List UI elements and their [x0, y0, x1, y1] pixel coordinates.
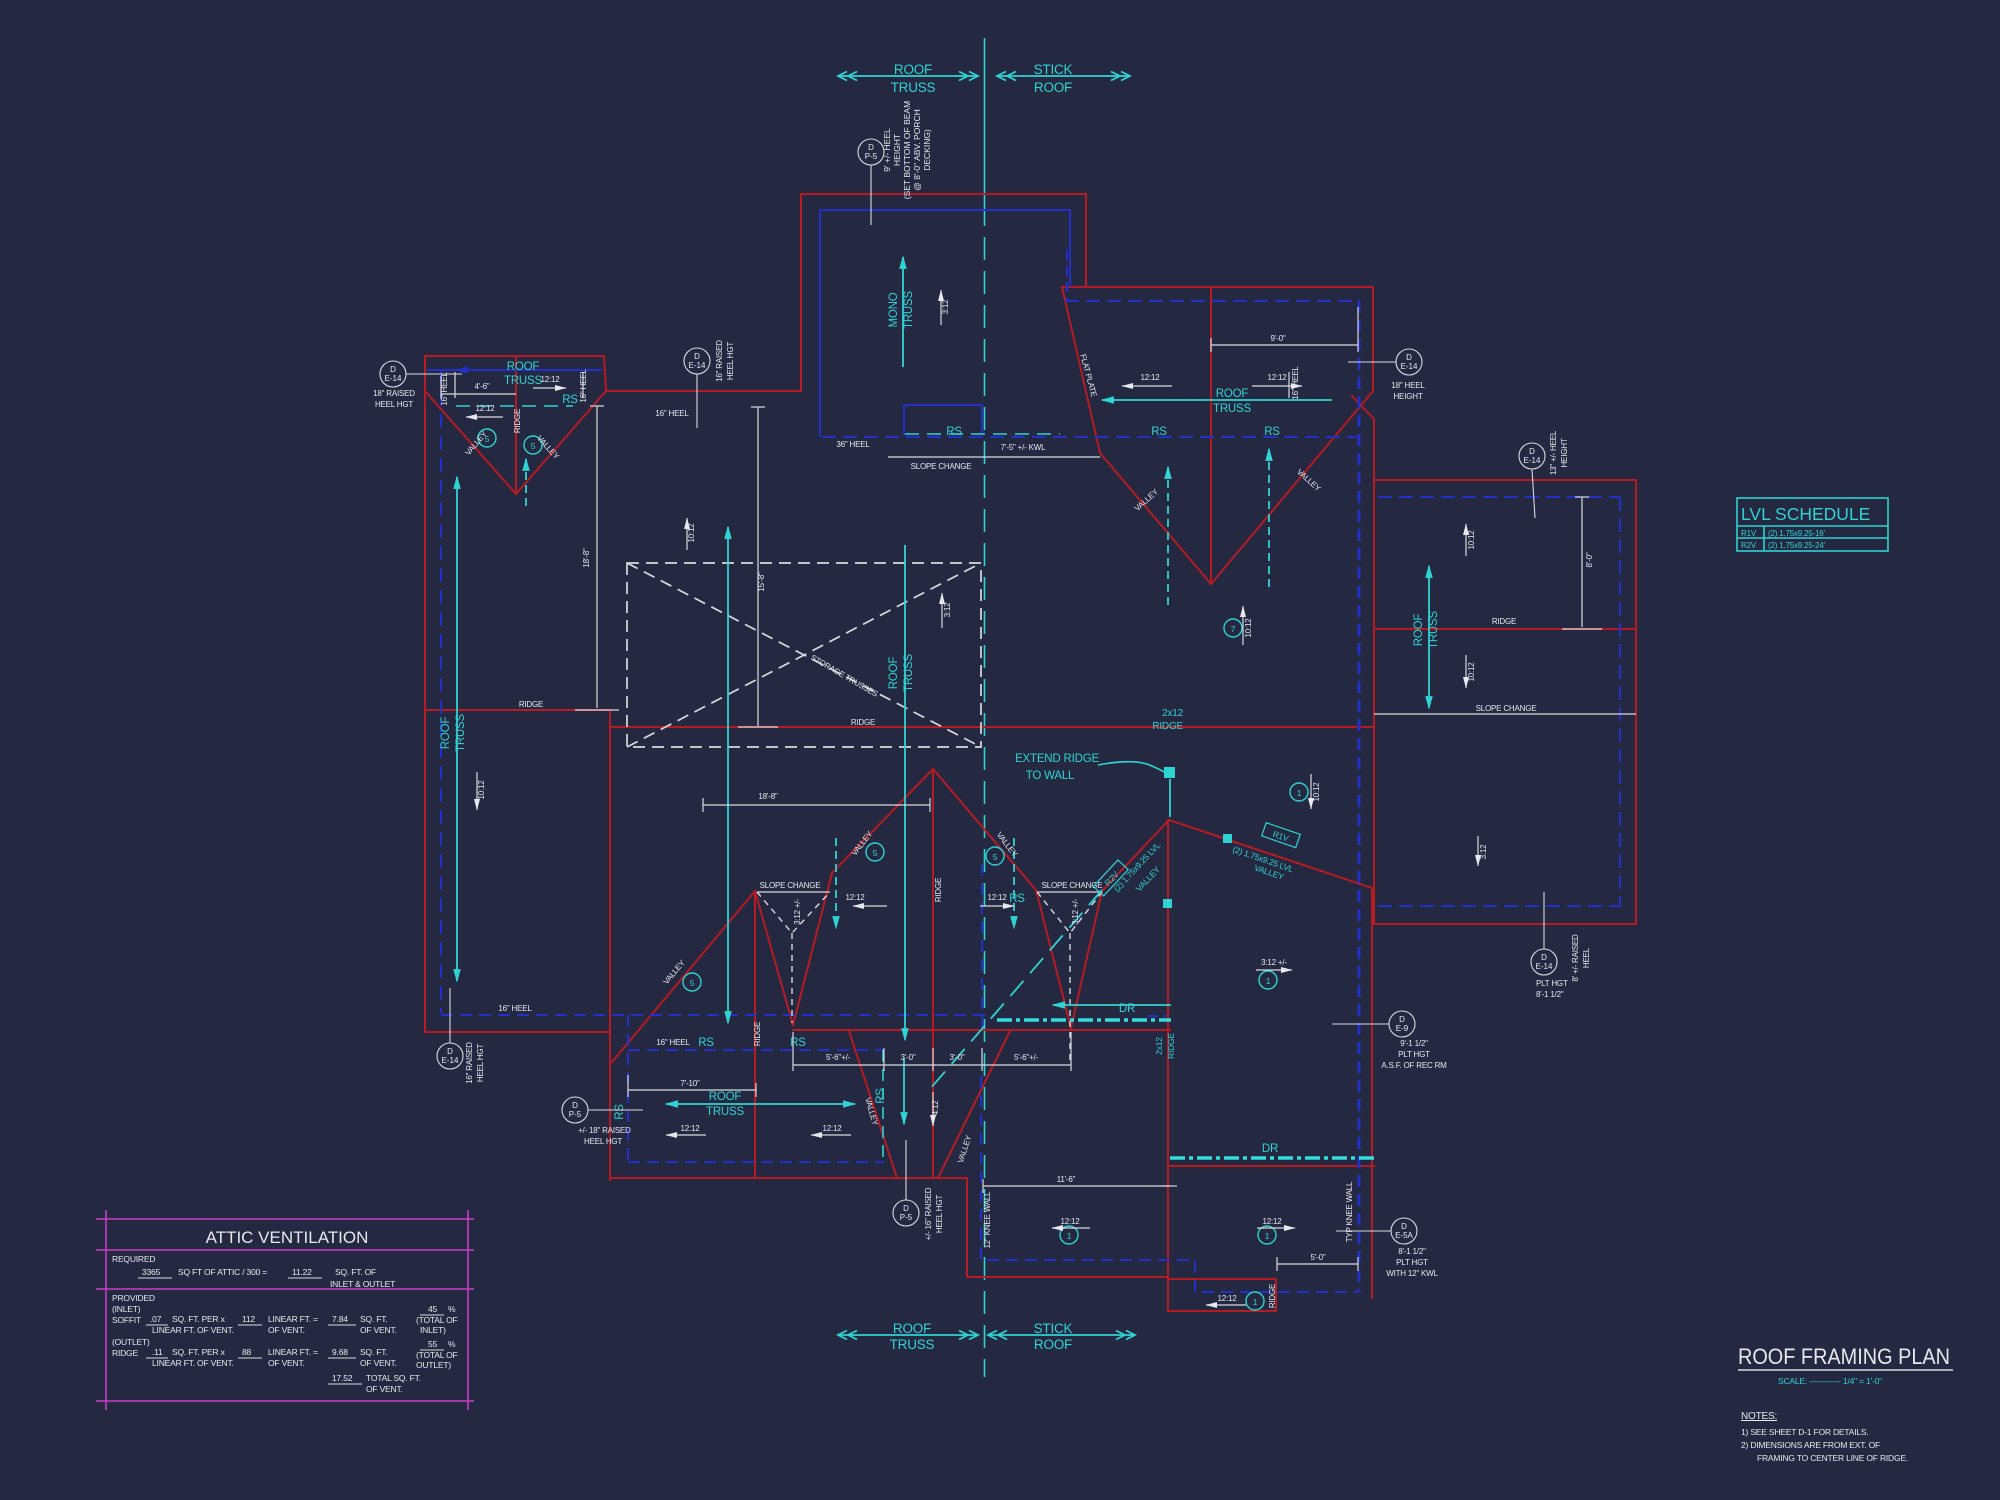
svg-text:SCALE: ------------ 1/4" = 1'-: SCALE: ------------ 1/4" = 1'-0"	[1778, 1376, 1882, 1386]
svg-text:NOTES:: NOTES:	[1741, 1411, 1777, 1422]
svg-text:D: D	[1406, 353, 1412, 362]
svg-text:5'-6"+/-: 5'-6"+/-	[826, 1053, 850, 1062]
svg-text:16" HEEL: 16" HEEL	[579, 369, 588, 403]
svg-text:(TOTAL OF: (TOTAL OF	[416, 1350, 458, 1360]
svg-text:18'-8": 18'-8"	[582, 548, 591, 568]
svg-text:RS: RS	[1151, 426, 1167, 438]
svg-text:EXTEND RIDGE: EXTEND RIDGE	[1015, 753, 1099, 765]
svg-text:OF VENT.: OF VENT.	[268, 1358, 305, 1368]
svg-text:OUTLET): OUTLET)	[416, 1360, 451, 1370]
svg-text:12:12: 12:12	[475, 404, 495, 413]
svg-text:55: 55	[428, 1339, 438, 1349]
svg-text:RS: RS	[562, 394, 578, 406]
svg-text:ROOF: ROOF	[893, 1321, 931, 1336]
svg-text:5: 5	[873, 848, 878, 858]
svg-text:16" HEEL: 16" HEEL	[498, 1004, 532, 1013]
svg-text:E-14: E-14	[1524, 456, 1541, 465]
svg-text:SQ. FT. OF: SQ. FT. OF	[335, 1267, 376, 1277]
svg-text:ROOF: ROOF	[1413, 614, 1425, 647]
svg-text:E-14: E-14	[385, 374, 402, 383]
svg-text:10:12: 10:12	[477, 780, 486, 800]
svg-text:8'-1 1/2": 8'-1 1/2"	[1398, 1247, 1426, 1256]
svg-text:12:12: 12:12	[987, 893, 1007, 902]
svg-text:1) SEE SHEET D-1 FOR DETAILS.: 1) SEE SHEET D-1 FOR DETAILS.	[1741, 1427, 1869, 1437]
svg-text:.07: .07	[150, 1314, 162, 1324]
svg-text:1: 1	[1297, 788, 1302, 798]
svg-text:RS: RS	[1264, 426, 1280, 438]
svg-text:HEIGHT: HEIGHT	[892, 134, 902, 166]
svg-text:7.84: 7.84	[332, 1314, 348, 1324]
svg-text:TRUSS: TRUSS	[891, 80, 936, 95]
svg-text:D: D	[903, 1204, 909, 1213]
svg-text:R1V: R1V	[1741, 529, 1757, 538]
svg-text:12:12: 12:12	[822, 1124, 842, 1133]
svg-text:2) DIMENSIONS ARE FROM EXT. O: 2) DIMENSIONS ARE FROM EXT. OF	[1741, 1440, 1880, 1450]
svg-text:P-5: P-5	[865, 152, 878, 161]
svg-text:HEEL: HEEL	[1582, 947, 1591, 968]
svg-text:(2) 1.75x9.25-16': (2) 1.75x9.25-16'	[1768, 529, 1826, 538]
svg-text:12:12: 12:12	[1060, 1217, 1080, 1226]
svg-text:TOTAL SQ. FT.: TOTAL SQ. FT.	[366, 1373, 421, 1383]
svg-text:D: D	[1541, 953, 1547, 962]
svg-text:1: 1	[1266, 976, 1271, 986]
svg-text:HEIGHT: HEIGHT	[1393, 392, 1422, 401]
svg-text:INLET): INLET)	[420, 1325, 446, 1335]
svg-text:5'-6"+/-: 5'-6"+/-	[1014, 1053, 1038, 1062]
svg-text:12:12: 12:12	[1262, 1217, 1282, 1226]
svg-text:16" RAISED: 16" RAISED	[715, 340, 724, 382]
svg-text:TRUSS: TRUSS	[890, 1337, 935, 1352]
svg-text:+/- 16" RAISED: +/- 16" RAISED	[924, 1187, 933, 1240]
svg-text:RIDGE: RIDGE	[519, 700, 543, 709]
svg-text:RIDGE: RIDGE	[513, 409, 522, 433]
svg-text:E-14: E-14	[689, 361, 706, 370]
svg-text:8' +/- RAISED: 8' +/- RAISED	[1571, 934, 1580, 982]
svg-text:RIDGE: RIDGE	[753, 1022, 762, 1046]
svg-text:A.S.F. OF REC RM: A.S.F. OF REC RM	[1381, 1061, 1447, 1070]
svg-text:18'-8": 18'-8"	[758, 792, 778, 801]
svg-text:D: D	[1399, 1015, 1405, 1024]
svg-text:LINEAR FT. OF VENT.: LINEAR FT. OF VENT.	[152, 1325, 234, 1335]
svg-text:15'-8": 15'-8"	[757, 572, 766, 592]
svg-text:3'-0": 3'-0"	[950, 1053, 965, 1062]
svg-text:RS: RS	[614, 1104, 626, 1120]
svg-text:SLOPE CHANGE: SLOPE CHANGE	[760, 881, 821, 890]
svg-text:PROVIDED: PROVIDED	[112, 1293, 155, 1303]
svg-text:OF VENT.: OF VENT.	[268, 1325, 305, 1335]
svg-text:TRUSS: TRUSS	[706, 1106, 745, 1118]
svg-text:3:12: 3:12	[941, 299, 950, 315]
svg-text:TYP KNEE WALL: TYP KNEE WALL	[1345, 1181, 1354, 1242]
svg-text:12:12: 12:12	[1217, 1294, 1237, 1303]
svg-text:+/- 18" RAISED: +/- 18" RAISED	[578, 1126, 631, 1135]
svg-text:HEEL HGT: HEEL HGT	[375, 400, 413, 409]
svg-text:2x12: 2x12	[1154, 1037, 1164, 1055]
svg-text:D: D	[868, 143, 874, 152]
svg-text:D: D	[447, 1047, 453, 1056]
svg-text:RS: RS	[1009, 893, 1025, 905]
svg-text:(SET BOTTOM OF BEAM: (SET BOTTOM OF BEAM	[902, 101, 912, 199]
svg-text:P-5: P-5	[569, 1110, 582, 1119]
svg-text:E-5A: E-5A	[1395, 1231, 1413, 1240]
svg-text:TRUSS: TRUSS	[903, 653, 915, 692]
svg-text:ROOF: ROOF	[1034, 80, 1072, 95]
svg-text:LINEAR FT. OF VENT.: LINEAR FT. OF VENT.	[152, 1358, 234, 1368]
svg-text:4'-6": 4'-6"	[475, 382, 490, 391]
svg-text:RIDGE: RIDGE	[934, 878, 943, 902]
svg-text:13" +/- HEEL: 13" +/- HEEL	[1549, 430, 1558, 475]
svg-text:1: 1	[1253, 1297, 1258, 1307]
svg-text:TRUSS: TRUSS	[455, 713, 467, 752]
svg-text:TRUSS: TRUSS	[1213, 403, 1252, 415]
svg-text:12:12: 12:12	[1267, 373, 1287, 382]
svg-text:(OUTLET): (OUTLET)	[112, 1337, 150, 1347]
svg-text:RS: RS	[946, 426, 962, 438]
svg-text:ROOF: ROOF	[440, 717, 452, 750]
svg-text:SQ. FT. PER x: SQ. FT. PER x	[172, 1347, 226, 1357]
svg-text:D: D	[694, 352, 700, 361]
svg-text:ROOF FRAMING PLAN: ROOF FRAMING PLAN	[1738, 1344, 1950, 1369]
svg-text:16" RAISED: 16" RAISED	[465, 1042, 474, 1084]
svg-text:LVL SCHEDULE: LVL SCHEDULE	[1741, 504, 1870, 524]
svg-text:HEEL HGT: HEEL HGT	[935, 1195, 944, 1233]
svg-text:8'-0": 8'-0"	[1585, 552, 1594, 567]
svg-text:12:12: 12:12	[540, 375, 560, 384]
svg-text:7'-5" +/- KWL: 7'-5" +/- KWL	[1001, 443, 1046, 452]
svg-text:ATTIC VENTILATION: ATTIC VENTILATION	[206, 1228, 369, 1247]
svg-text:88: 88	[242, 1347, 252, 1357]
svg-text:18" HEEL: 18" HEEL	[1391, 381, 1425, 390]
svg-text:9'-1 1/2": 9'-1 1/2"	[1400, 1039, 1428, 1048]
svg-text:12:12: 12:12	[845, 893, 865, 902]
svg-text:7: 7	[1231, 624, 1236, 634]
svg-text:3:12: 3:12	[943, 602, 952, 618]
svg-text:RIDGE: RIDGE	[1268, 1284, 1277, 1308]
svg-text:SQ. FT. PER x: SQ. FT. PER x	[172, 1314, 226, 1324]
svg-text:TRUSS: TRUSS	[504, 375, 543, 387]
svg-text:11.22: 11.22	[292, 1267, 312, 1277]
svg-text:ROOF: ROOF	[1216, 388, 1249, 400]
svg-text:WITH 12" KWL: WITH 12" KWL	[1386, 1269, 1438, 1278]
svg-text:RIDGE: RIDGE	[851, 718, 875, 727]
svg-text:4:12: 4:12	[931, 1100, 940, 1116]
svg-text:(2) 1.75x9.25-24': (2) 1.75x9.25-24'	[1768, 541, 1826, 550]
svg-text:HEEL HGT: HEEL HGT	[726, 342, 735, 380]
svg-text:3:12: 3:12	[1479, 844, 1488, 860]
svg-text:10:12: 10:12	[1467, 662, 1476, 682]
svg-text:HEEL HGT: HEEL HGT	[476, 1044, 485, 1082]
svg-text:16" HEEL: 16" HEEL	[656, 1038, 690, 1047]
svg-text:FRAMING TO CENTER LINE OF RIDG: FRAMING TO CENTER LINE OF RIDGE.	[1757, 1453, 1908, 1463]
svg-text:3'-0": 3'-0"	[901, 1053, 916, 1062]
svg-text:PLT HGT: PLT HGT	[1536, 979, 1568, 988]
svg-text:DR: DR	[1262, 1143, 1278, 1155]
svg-text:9.68: 9.68	[332, 1347, 348, 1357]
svg-text:RIDGE: RIDGE	[1152, 721, 1183, 732]
svg-text:3:12 +/-: 3:12 +/-	[793, 899, 802, 925]
svg-text:%: %	[448, 1304, 456, 1314]
svg-text:SQ. FT.: SQ. FT.	[360, 1347, 387, 1357]
svg-text:R2V: R2V	[1741, 541, 1757, 550]
svg-text:SLOPE CHANGE: SLOPE CHANGE	[1042, 881, 1103, 890]
svg-text:D: D	[390, 365, 396, 374]
svg-text:D: D	[1529, 447, 1535, 456]
svg-text:LINEAR FT. =: LINEAR FT. =	[268, 1314, 318, 1324]
svg-text:PLT HGT: PLT HGT	[1398, 1050, 1430, 1059]
svg-text:(INLET): (INLET)	[112, 1304, 141, 1314]
svg-text:SQ FT OF ATTIC / 300 =: SQ FT OF ATTIC / 300 =	[178, 1267, 267, 1277]
svg-text:ROOF: ROOF	[709, 1091, 742, 1103]
svg-text:E-14: E-14	[1401, 362, 1418, 371]
svg-text:RIDGE: RIDGE	[1492, 617, 1516, 626]
svg-text:TRUSS: TRUSS	[1428, 610, 1440, 649]
svg-text:OF VENT.: OF VENT.	[366, 1384, 403, 1394]
svg-text:STICK: STICK	[1034, 1321, 1073, 1336]
svg-text:P-5: P-5	[900, 1213, 913, 1222]
svg-text:E-14: E-14	[442, 1056, 459, 1065]
svg-text:SOFFIT: SOFFIT	[112, 1315, 141, 1325]
svg-text:DECKING): DECKING)	[922, 129, 932, 171]
svg-text:TO WALL: TO WALL	[1026, 770, 1075, 782]
svg-text:TRUSS: TRUSS	[903, 290, 915, 329]
svg-text:HEEL HGT: HEEL HGT	[584, 1137, 622, 1146]
svg-text:RS: RS	[698, 1037, 714, 1049]
svg-text:MONO: MONO	[888, 292, 900, 327]
svg-text:ROOF: ROOF	[894, 62, 932, 77]
svg-text:5: 5	[993, 852, 998, 862]
svg-text:SQ. FT.: SQ. FT.	[360, 1314, 387, 1324]
svg-text:.11: .11	[152, 1347, 163, 1357]
svg-text:ROOF: ROOF	[888, 657, 900, 690]
svg-text:HEIGHT: HEIGHT	[1560, 438, 1569, 467]
svg-text:RIDGE: RIDGE	[1166, 1033, 1176, 1059]
svg-text:E-14: E-14	[1536, 962, 1553, 971]
svg-text:12" KNEE WALL: 12" KNEE WALL	[983, 1191, 992, 1249]
svg-text:10:12: 10:12	[1467, 530, 1476, 550]
svg-text:12:12: 12:12	[1140, 373, 1160, 382]
svg-text:16" HEEL: 16" HEEL	[1291, 366, 1300, 400]
svg-text:@ 8'-0" ABV. PORCH: @ 8'-0" ABV. PORCH	[912, 109, 922, 190]
svg-text:10:12: 10:12	[687, 523, 696, 543]
svg-text:5: 5	[690, 978, 695, 988]
svg-text:12:12: 12:12	[680, 1124, 700, 1133]
svg-text:INLET & OUTLET: INLET & OUTLET	[330, 1279, 395, 1289]
svg-text:5: 5	[531, 441, 536, 451]
svg-text:5'-0": 5'-0"	[1311, 1253, 1326, 1262]
svg-text:1: 1	[1067, 1231, 1072, 1241]
svg-text:16" HEEL: 16" HEEL	[440, 372, 449, 406]
svg-text:LINEAR FT. =: LINEAR FT. =	[268, 1347, 318, 1357]
svg-text:3365: 3365	[142, 1267, 161, 1277]
svg-text:E-9: E-9	[1396, 1024, 1409, 1033]
svg-text:17.52: 17.52	[332, 1373, 353, 1383]
svg-text:9'-0": 9'-0"	[1271, 334, 1286, 343]
svg-text:3:12 +/-: 3:12 +/-	[1261, 958, 1287, 967]
svg-text:10:12: 10:12	[1244, 618, 1253, 638]
svg-text:10:12: 10:12	[1312, 782, 1321, 802]
svg-text:7'-10": 7'-10"	[680, 1079, 700, 1088]
svg-text:9' +/- HEEL: 9' +/- HEEL	[882, 128, 892, 172]
svg-text:OF VENT.: OF VENT.	[360, 1325, 397, 1335]
svg-text:ROOF: ROOF	[507, 361, 540, 373]
svg-text:18" RAISED: 18" RAISED	[373, 389, 415, 398]
svg-text:STICK: STICK	[1034, 62, 1073, 77]
svg-text:16" HEEL: 16" HEEL	[655, 409, 689, 418]
svg-text:D: D	[1401, 1222, 1407, 1231]
svg-text:D: D	[572, 1101, 578, 1110]
svg-text:36" HEEL: 36" HEEL	[836, 440, 870, 449]
svg-text:3:12 +/-: 3:12 +/-	[1071, 899, 1080, 925]
svg-text:11'-6": 11'-6"	[1057, 1175, 1076, 1184]
svg-text:OF VENT.: OF VENT.	[360, 1358, 397, 1368]
svg-text:REQUIRED: REQUIRED	[112, 1254, 155, 1264]
svg-text:(TOTAL OF: (TOTAL OF	[416, 1315, 458, 1325]
svg-text:1: 1	[1265, 1231, 1270, 1241]
svg-text:SLOPE CHANGE: SLOPE CHANGE	[911, 462, 972, 471]
svg-text:RIDGE: RIDGE	[112, 1348, 138, 1358]
svg-text:2x12: 2x12	[1162, 708, 1184, 719]
svg-text:45: 45	[428, 1304, 438, 1314]
svg-text:SLOPE CHANGE: SLOPE CHANGE	[1476, 704, 1537, 713]
svg-text:%: %	[448, 1339, 456, 1349]
svg-text:8'-1 1/2": 8'-1 1/2"	[1536, 990, 1564, 999]
svg-text:RS: RS	[875, 1088, 887, 1104]
svg-text:PLT HGT: PLT HGT	[1396, 1258, 1428, 1267]
svg-text:112: 112	[242, 1314, 255, 1324]
svg-text:DR: DR	[1119, 1003, 1135, 1015]
svg-text:ROOF: ROOF	[1034, 1337, 1072, 1352]
